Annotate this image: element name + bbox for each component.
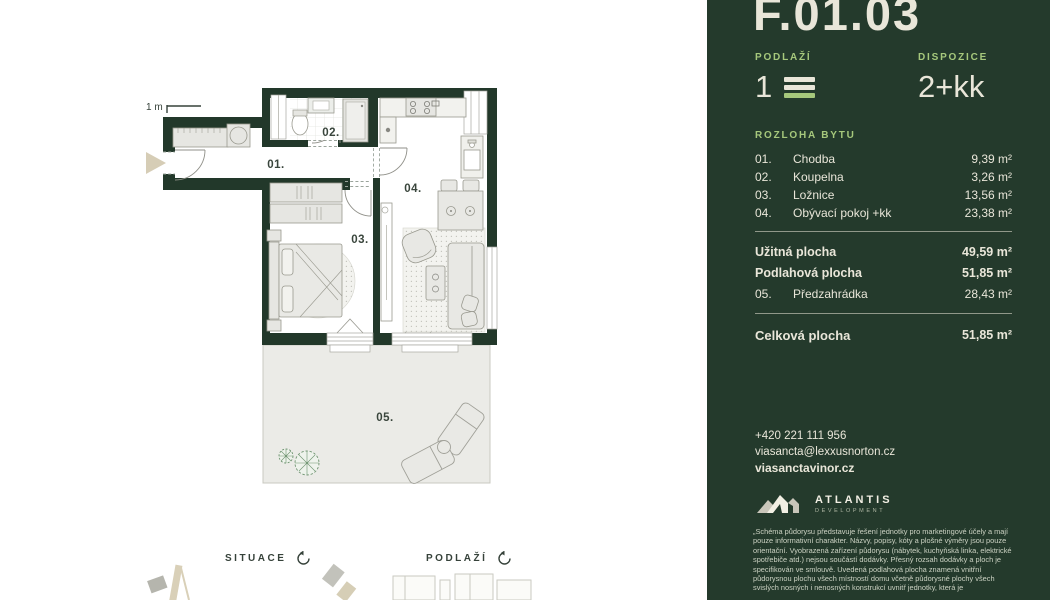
divider xyxy=(755,313,1012,314)
brand-name: ATLANTIS xyxy=(815,495,893,506)
table-row: 05. Předzahrádka 28,43 m² xyxy=(755,283,1012,304)
floor-value: 1 xyxy=(755,69,772,105)
table-row: 01. Chodba 9,39 m² xyxy=(755,150,1012,168)
table-row: 04. Obývací pokoj +kk 23,38 m² xyxy=(755,204,1012,222)
contact-block: +420 221 111 956 viasancta@lexxusnorton.… xyxy=(755,428,895,476)
layout-value: 2+kk xyxy=(918,69,984,105)
area-table: ROZLOHA BYTU 01. Chodba 9,39 m² 02. Koup… xyxy=(755,130,1012,347)
table-row: 02. Koupelna 3,26 m² xyxy=(755,168,1012,186)
floor-plan: 1 m xyxy=(0,0,710,600)
rotate-arrow-icon xyxy=(497,551,512,566)
contact-email[interactable]: viasancta@lexxusnorton.cz xyxy=(755,444,895,460)
room-label-05: 05. xyxy=(376,412,394,424)
bedroom-furniture xyxy=(267,183,355,331)
entrance-arrow-icon xyxy=(146,152,166,174)
total-row: Celková plocha 51,85 m² xyxy=(755,323,1012,347)
disclaimer-text: „Schéma půdorysu představuje řešení jedn… xyxy=(753,527,1014,593)
room-label-04: 04. xyxy=(404,183,422,195)
room-label-01: 01. xyxy=(267,159,285,171)
stacked-floor-bars-icon xyxy=(784,77,815,98)
table-row: Užitná plocha 49,59 m² xyxy=(755,241,1012,262)
unit-id: F.01.03 xyxy=(753,0,921,41)
table-row: 03. Ložnice 13,56 m² xyxy=(755,186,1012,204)
contact-phone: +420 221 111 956 xyxy=(755,428,895,444)
rotate-arrow-icon xyxy=(296,551,311,566)
contact-website[interactable]: viasanctavinor.cz xyxy=(755,460,895,476)
area-table-heading: ROZLOHA BYTU xyxy=(755,130,1012,141)
podlazi-thumbnail[interactable] xyxy=(322,564,531,600)
living-room-furniture xyxy=(381,180,485,332)
scale-bar: 1 m xyxy=(146,102,201,113)
situace-view-button[interactable]: SITUACE xyxy=(225,551,311,566)
situace-label: SITUACE xyxy=(225,553,286,564)
layout-label: DISPOZICE xyxy=(918,52,988,63)
room-label-03: 03. xyxy=(351,234,369,246)
room-label-02: 02. xyxy=(322,127,340,139)
podlazi-label: PODLAŽÍ xyxy=(426,553,487,564)
podlazi-view-button[interactable]: PODLAŽÍ xyxy=(426,551,512,566)
unit-info-panel: F.01.03 PODLAŽÍ 1 DISPOZICE 2+kk ROZLOHA… xyxy=(707,0,1050,600)
situace-thumbnail[interactable] xyxy=(147,565,189,600)
svg-text:1 m: 1 m xyxy=(146,102,163,113)
mountain-logo-icon xyxy=(755,494,807,514)
unit-specs: PODLAŽÍ 1 DISPOZICE 2+kk xyxy=(755,52,1020,107)
table-row: Podlahová plocha 51,85 m² xyxy=(755,262,1012,283)
brand-subtitle: DEVELOPMENT xyxy=(815,508,893,514)
developer-logo: ATLANTIS DEVELOPMENT xyxy=(755,494,893,514)
divider xyxy=(755,231,1012,232)
